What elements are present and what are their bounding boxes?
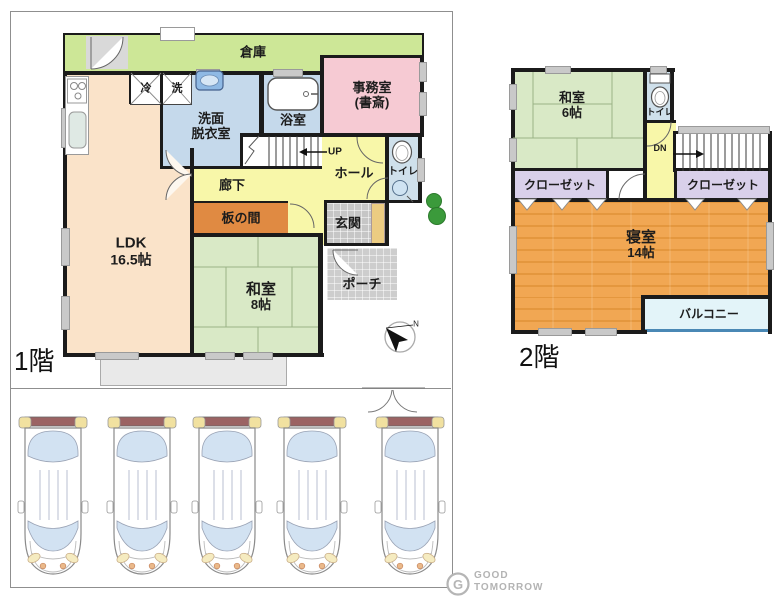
svg-text:G: G bbox=[453, 577, 463, 592]
room-bedroom-ext bbox=[513, 297, 645, 332]
label-corridor: 廊下 bbox=[219, 179, 245, 194]
logo-line1: GOOD bbox=[474, 570, 509, 581]
hall-2f-pocket bbox=[609, 169, 645, 200]
label-bathroom: 浴室 bbox=[280, 114, 306, 129]
parking-divider-line bbox=[10, 388, 451, 389]
floor2-title: 2階 bbox=[519, 337, 559, 374]
label-japanese-8: 和室8帖 bbox=[246, 281, 276, 313]
label-closet-left: クローゼット bbox=[524, 179, 596, 193]
label-wood-board: 板の間 bbox=[221, 212, 260, 227]
label-toilet-1f: トイレ bbox=[388, 166, 418, 178]
label-office: 事務室(書斎) bbox=[352, 81, 391, 111]
label-storage: 倉庫 bbox=[240, 46, 266, 61]
label-toilet-2f: トイレ bbox=[646, 107, 673, 117]
label-bedroom: 寝室14帖 bbox=[626, 229, 656, 261]
label-up: UP bbox=[328, 146, 342, 158]
label-closet-right: クローゼット bbox=[687, 179, 759, 193]
label-washer: 洗 bbox=[172, 83, 183, 96]
label-balcony: バルコニー bbox=[679, 308, 739, 322]
stairs-1f bbox=[242, 135, 322, 168]
stairs-2f-window-strip bbox=[678, 126, 770, 134]
label-dn: DN bbox=[654, 143, 667, 153]
label-entrance: 玄関 bbox=[335, 217, 361, 232]
label-japanese-6: 和室6帖 bbox=[559, 91, 585, 121]
label-fridge: 冷 bbox=[141, 83, 152, 96]
label-porch: ポーチ bbox=[342, 278, 381, 293]
label-hall: ホール bbox=[334, 167, 373, 182]
balcony-edge bbox=[643, 329, 772, 332]
stairs-2f bbox=[676, 133, 770, 172]
entrance-door-cabinet bbox=[371, 203, 385, 245]
label-washroom: 洗面脱衣室 bbox=[191, 112, 230, 142]
room-corridor bbox=[192, 168, 322, 203]
logo-line2: TOMORROW bbox=[474, 582, 543, 593]
floor-plan-canvas: G 倉庫 事務室(書斎) 冷 洗 洗面脱衣室 浴室 UP ホール トイレ 廊下 … bbox=[0, 0, 783, 600]
hall-2f bbox=[645, 120, 676, 200]
compass-north-label: N bbox=[413, 319, 419, 328]
floor1-title: 1階 bbox=[14, 341, 54, 378]
label-ldk: LDK16.5帖 bbox=[110, 234, 151, 267]
